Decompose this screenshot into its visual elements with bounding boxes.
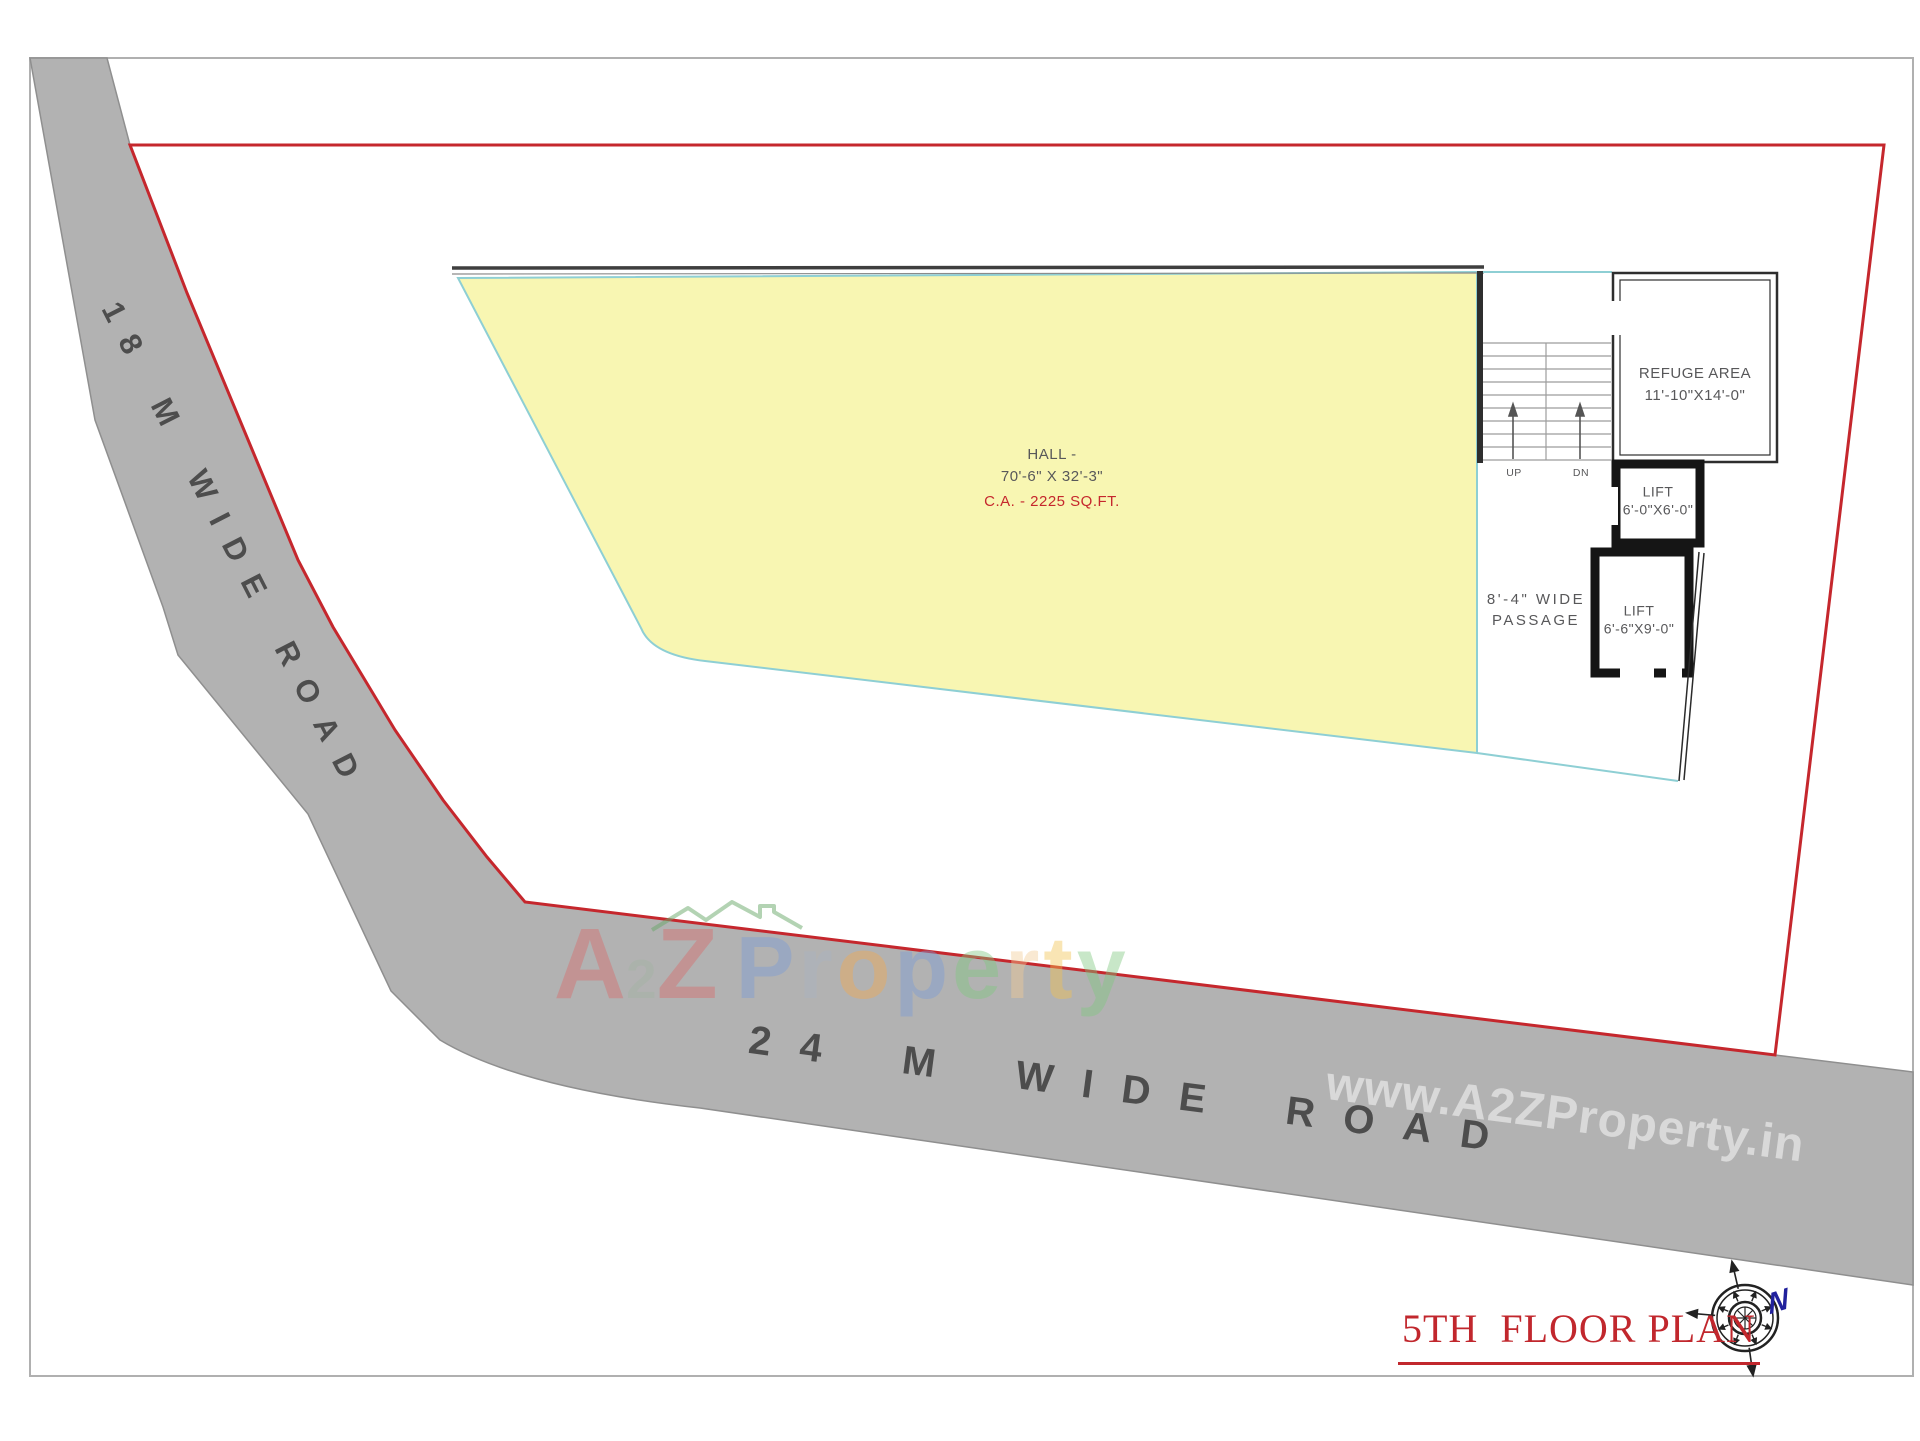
watermark-logo: A2ZProperty bbox=[536, 896, 1130, 1032]
passage-label-line2: PASSAGE bbox=[1492, 610, 1580, 633]
stair-dn-label: DN bbox=[1573, 466, 1589, 482]
refuge-area-dimensions: 11'-10"X14'-0" bbox=[1645, 385, 1746, 408]
watermark-letter: p bbox=[894, 924, 952, 1012]
stair-up-label: UP bbox=[1506, 466, 1522, 482]
watermark-letter: y bbox=[1077, 924, 1130, 1012]
watermark-letter: P bbox=[736, 924, 799, 1012]
hall-carpet-area: C.A. - 2225 SQ.FT. bbox=[984, 491, 1120, 514]
passage-label-line1: 8'-4" WIDE bbox=[1487, 589, 1585, 612]
floor-plan-canvas: A2ZProperty www.A2ZProperty.in 18 M WIDE… bbox=[0, 0, 1920, 1441]
hall-dimensions: 70'-6" X 32'-3" bbox=[1001, 466, 1103, 489]
watermark-letter: r bbox=[1005, 924, 1043, 1012]
lift-large-dimensions: 6'-6"X9'-0" bbox=[1604, 619, 1675, 640]
stair-up-arrow bbox=[1509, 404, 1517, 459]
watermark-letter: 2 bbox=[626, 952, 657, 1007]
passage-edge-line bbox=[1477, 753, 1678, 781]
hall-top-wall bbox=[452, 267, 1484, 268]
watermark-letter: e bbox=[952, 924, 1005, 1012]
page-title: 5TH FLOOR PLAN bbox=[1398, 1305, 1760, 1365]
staircase-treads bbox=[1480, 343, 1611, 460]
watermark-letter: o bbox=[837, 924, 895, 1012]
watermark-letter: t bbox=[1043, 924, 1076, 1012]
hall-label: HALL - bbox=[1027, 444, 1076, 467]
watermark-letter: A bbox=[554, 914, 626, 1014]
stair-left-wall bbox=[1477, 271, 1483, 463]
watermark-logo-word: Property bbox=[736, 924, 1130, 1012]
plan-line-art bbox=[0, 0, 1920, 1441]
house-icon bbox=[650, 900, 810, 932]
watermark-letter: r bbox=[798, 924, 836, 1012]
refuge-area-label: REFUGE AREA bbox=[1639, 363, 1751, 386]
hall-shape bbox=[458, 272, 1477, 753]
lift-small-dimensions: 6'-0"X6'-0" bbox=[1623, 500, 1694, 521]
compass-north-label: N bbox=[1767, 1282, 1790, 1322]
stair-dn-arrow bbox=[1576, 404, 1584, 459]
